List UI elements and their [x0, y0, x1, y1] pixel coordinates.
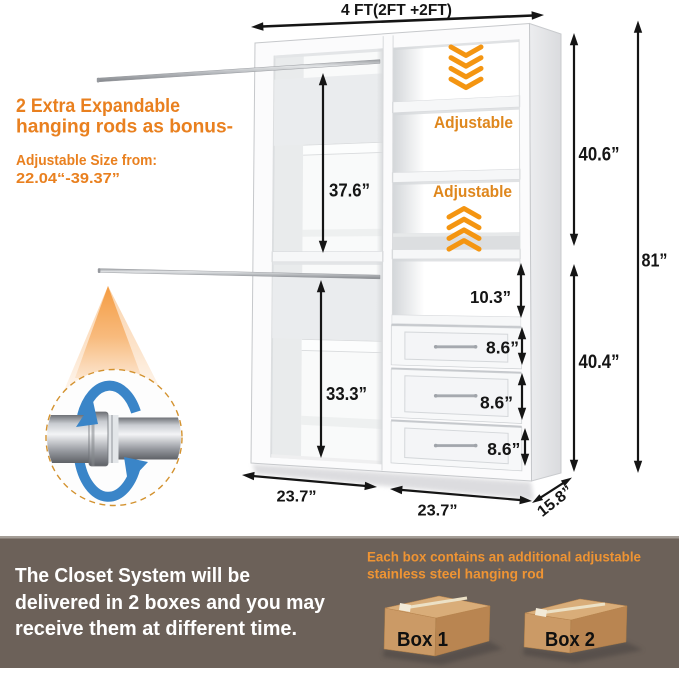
- svg-text:Box 1: Box 1: [397, 629, 448, 651]
- svg-text:2 Extra Expandable: 2 Extra Expandable: [16, 96, 180, 117]
- svg-text:8.6”: 8.6”: [486, 338, 519, 358]
- svg-text:8.6”: 8.6”: [480, 393, 513, 413]
- svg-text:Adjustable: Adjustable: [434, 113, 513, 132]
- svg-text:23.7”: 23.7”: [418, 502, 458, 519]
- svg-text:33.3”: 33.3”: [326, 384, 367, 404]
- svg-text:Adjustable Size from:: Adjustable Size from:: [16, 153, 157, 169]
- svg-text:stainless steel hanging rod: stainless steel hanging rod: [367, 567, 544, 582]
- svg-text:Adjustable: Adjustable: [433, 182, 512, 201]
- svg-text:40.4”: 40.4”: [579, 352, 620, 373]
- svg-text:22.04“-39.37”: 22.04“-39.37”: [16, 171, 120, 187]
- svg-text:The Closet System will be: The Closet System will be: [15, 565, 250, 587]
- svg-text:hanging rods as bonus-: hanging rods as bonus-: [16, 117, 233, 138]
- svg-text:23.7”: 23.7”: [277, 488, 317, 505]
- svg-text:4 FT(2FT +2FT): 4 FT(2FT +2FT): [341, 2, 452, 19]
- svg-text:Each box contains an additiona: Each box contains an additional adjustab…: [367, 550, 641, 565]
- svg-text:8.6”: 8.6”: [487, 439, 520, 459]
- svg-text:Box 2: Box 2: [545, 629, 595, 651]
- svg-text:delivered in 2 boxes and you m: delivered in 2 boxes and you may: [15, 592, 326, 614]
- svg-text:81”: 81”: [642, 251, 668, 271]
- svg-text:37.6”: 37.6”: [329, 181, 370, 201]
- svg-text:10.3”: 10.3”: [470, 287, 511, 307]
- svg-text:40.6”: 40.6”: [579, 145, 620, 166]
- svg-text:receive them at different time: receive them at different time.: [15, 618, 297, 640]
